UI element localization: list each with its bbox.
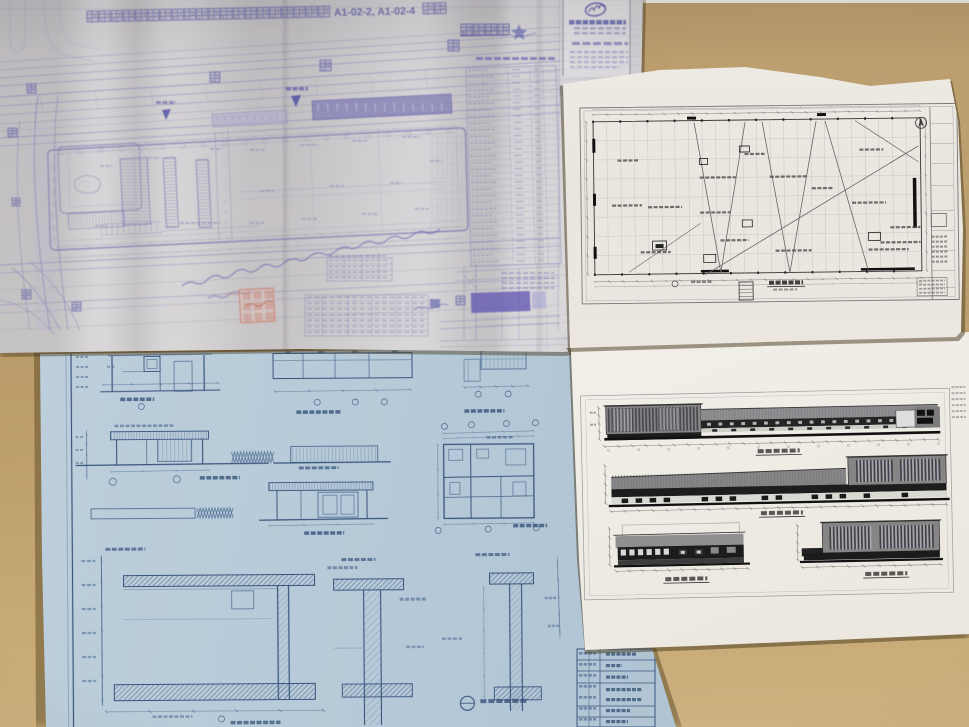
svg-text:A1-02-2, A1-02-4: A1-02-2, A1-02-4 [334,5,416,19]
